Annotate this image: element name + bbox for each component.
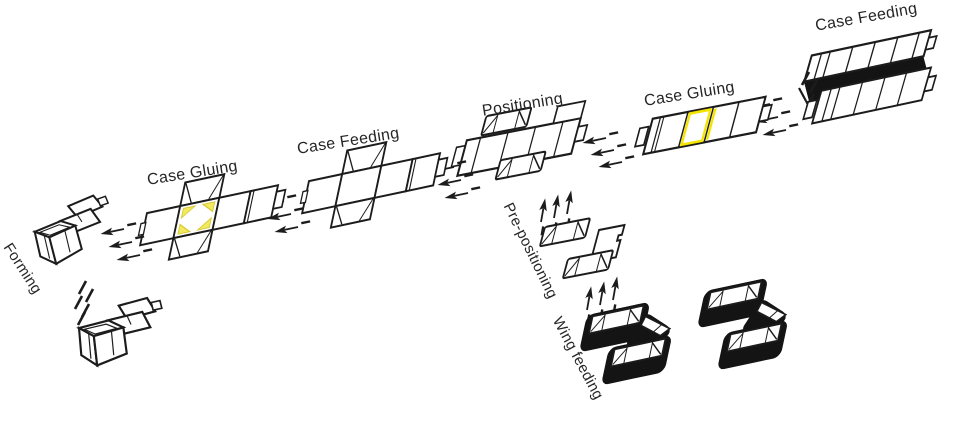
wing-stack [717, 320, 787, 370]
diagram-canvas: Case Feeding Case Gluing Positioning Cas… [0, 0, 980, 438]
wing-piece [563, 250, 613, 278]
wing-piece [540, 218, 590, 246]
motion-slash-icon [75, 281, 93, 325]
line-art-layer [0, 0, 980, 438]
left-flow-arrow-icon [582, 132, 636, 171]
forming-box-upper [32, 194, 114, 266]
forming-box-lower [78, 296, 162, 368]
